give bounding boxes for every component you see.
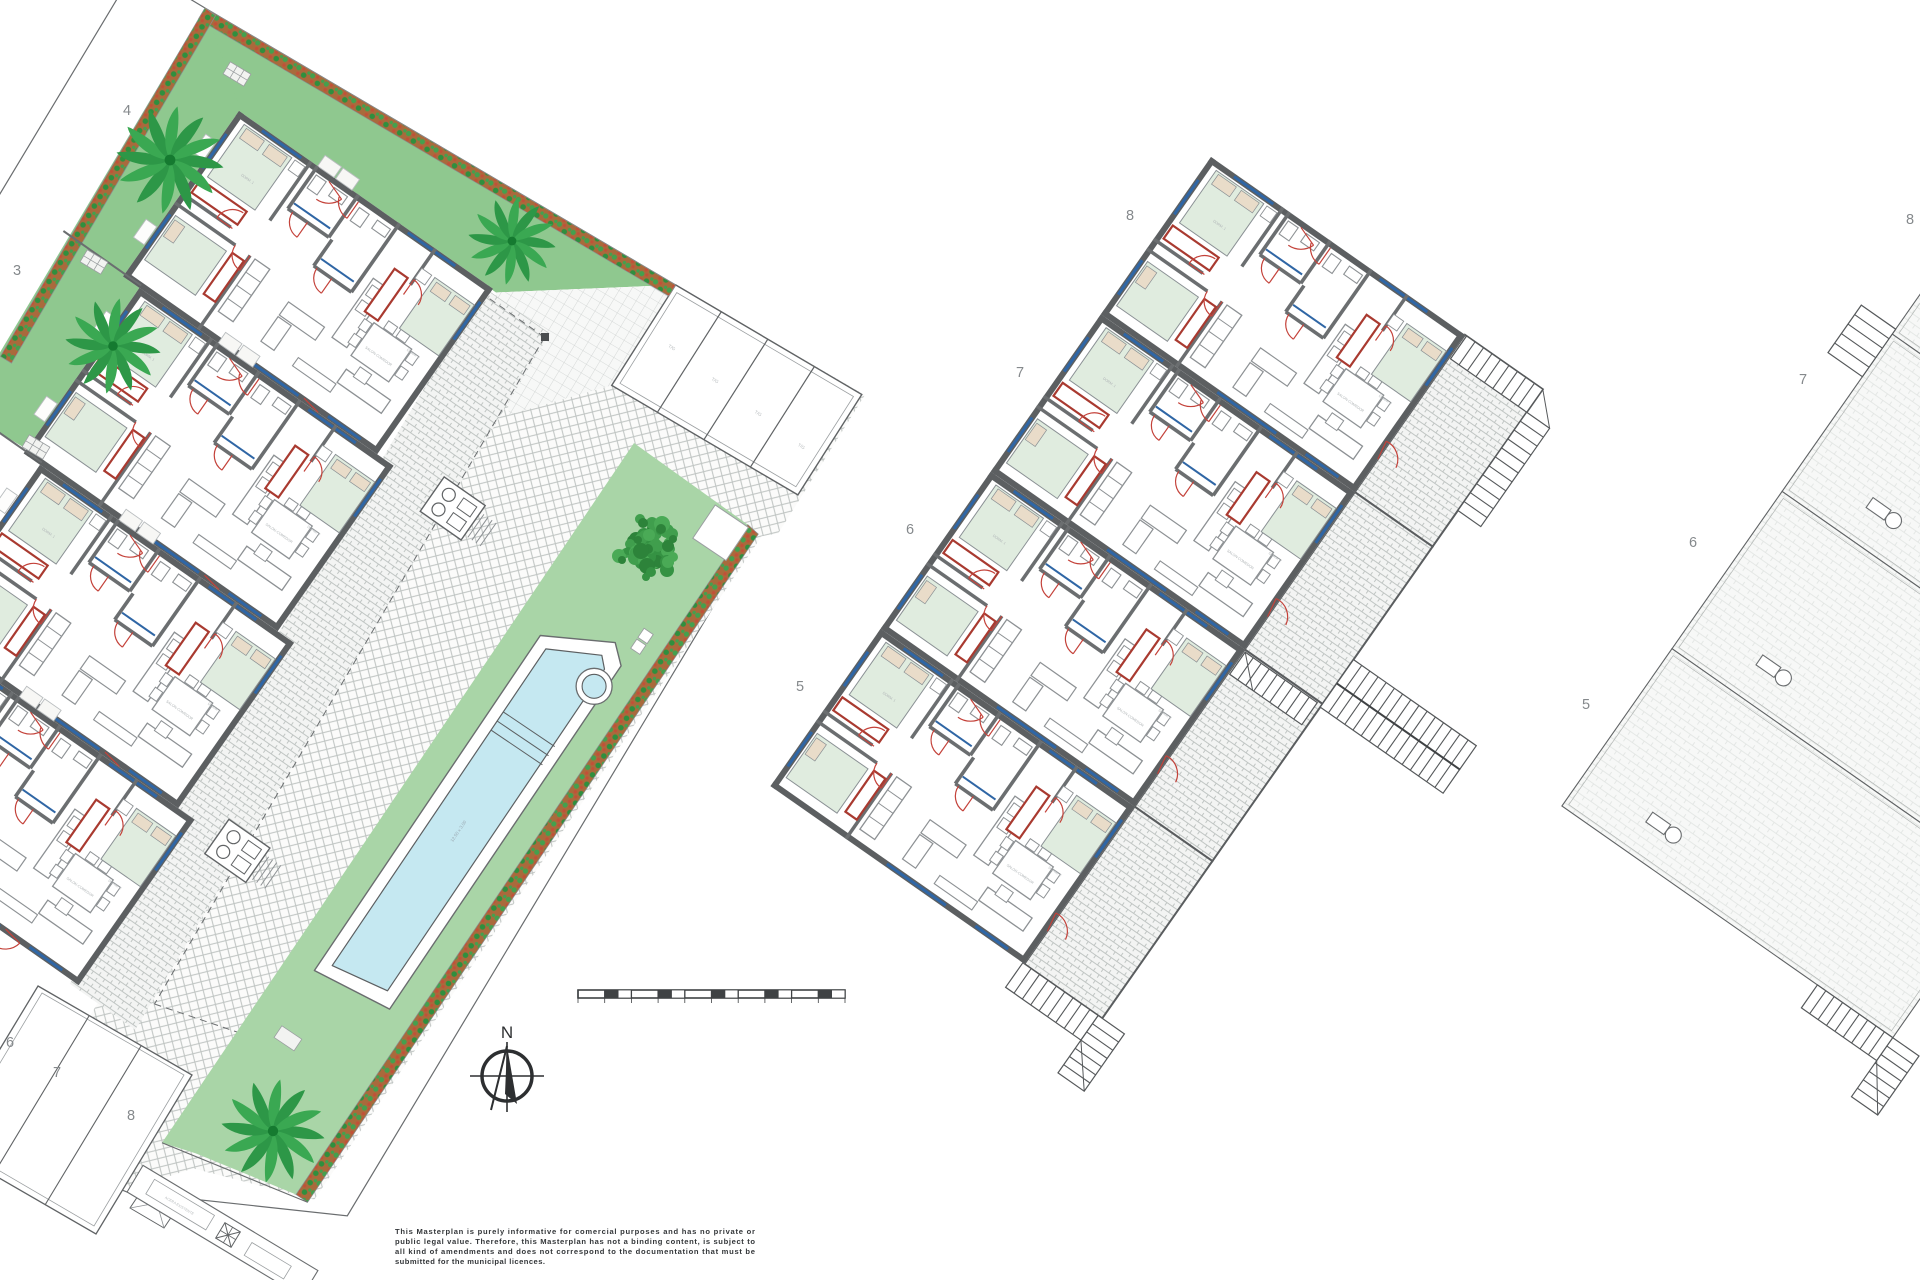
svg-text:7: 7 (1016, 365, 1024, 381)
svg-text:8: 8 (1906, 212, 1914, 228)
svg-text:7: 7 (53, 1065, 61, 1081)
svg-text:8: 8 (127, 1108, 135, 1124)
svg-text:7: 7 (1799, 372, 1807, 388)
svg-text:4: 4 (123, 103, 131, 119)
svg-text:N: N (501, 1023, 513, 1042)
svg-text:8: 8 (1126, 208, 1134, 224)
svg-text:6: 6 (906, 522, 914, 538)
svg-text:3: 3 (13, 263, 21, 279)
svg-text:submitted for the municipal li: submitted for the municipal licences. (395, 1257, 545, 1266)
svg-text:all kind of amendments and doe: all kind of amendments and does not corr… (395, 1247, 755, 1256)
svg-text:public legal value. Therefore,: public legal value. Therefore, this Mast… (395, 1237, 755, 1246)
svg-text:This Masterplan is purely info: This Masterplan is purely informative fo… (395, 1227, 755, 1236)
svg-text:5: 5 (1582, 697, 1590, 713)
svg-text:6: 6 (6, 1035, 14, 1051)
svg-text:5: 5 (796, 679, 804, 695)
svg-text:6: 6 (1689, 535, 1697, 551)
